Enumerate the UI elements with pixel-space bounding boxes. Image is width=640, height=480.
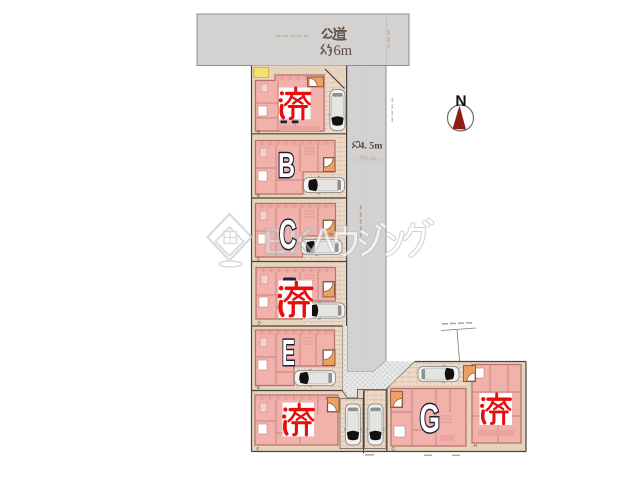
svg-text:約4.5m: 約4.5m <box>360 155 377 162</box>
svg-text:N: N <box>455 93 466 110</box>
svg-text:E: E <box>282 332 295 373</box>
svg-text:6m: 6m <box>334 43 353 59</box>
svg-text:H: H <box>474 443 477 448</box>
svg-text:A: A <box>257 129 260 134</box>
svg-text:B: B <box>257 193 260 198</box>
svg-text:G: G <box>392 447 396 452</box>
svg-text:C: C <box>279 212 297 258</box>
svg-text:G: G <box>420 397 441 441</box>
svg-text:B: B <box>278 147 295 185</box>
svg-text:4. 5m: 4. 5m <box>360 140 383 151</box>
svg-text:F: F <box>257 447 260 452</box>
svg-text:E: E <box>257 385 260 390</box>
